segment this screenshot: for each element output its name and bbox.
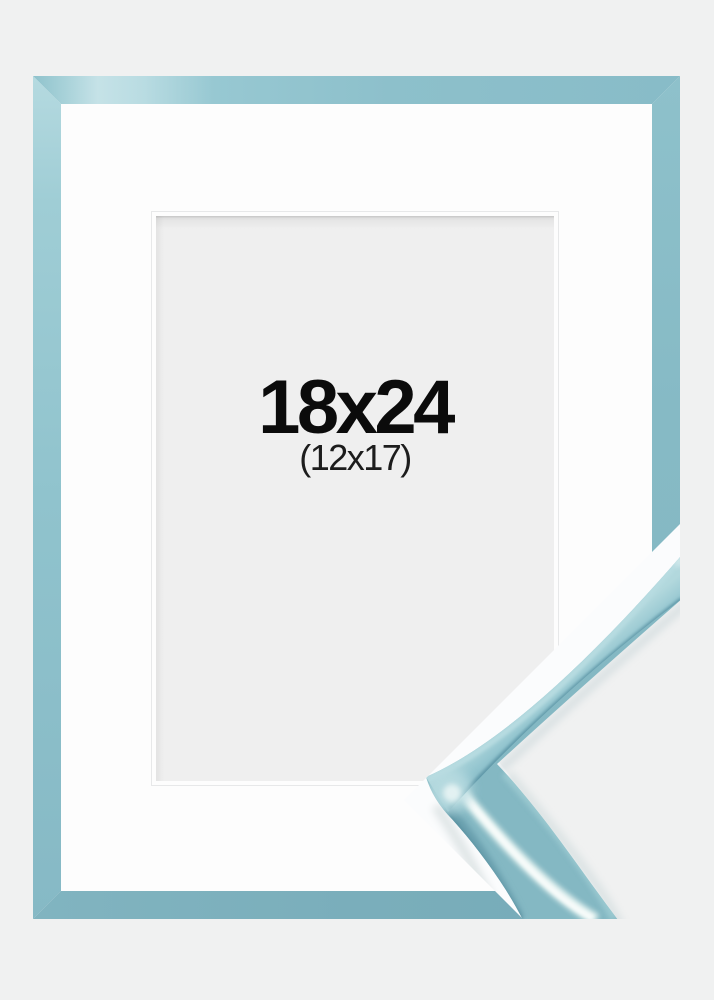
inner-size-label: (12x17) bbox=[299, 437, 411, 478]
frame-border-left bbox=[33, 76, 61, 919]
frame-border-top bbox=[33, 76, 680, 104]
artwork-area bbox=[156, 216, 554, 781]
frame-product-visual: 18x24 (12x17) bbox=[0, 0, 714, 1000]
product-image: 18x24 (12x17) bbox=[0, 0, 714, 1000]
